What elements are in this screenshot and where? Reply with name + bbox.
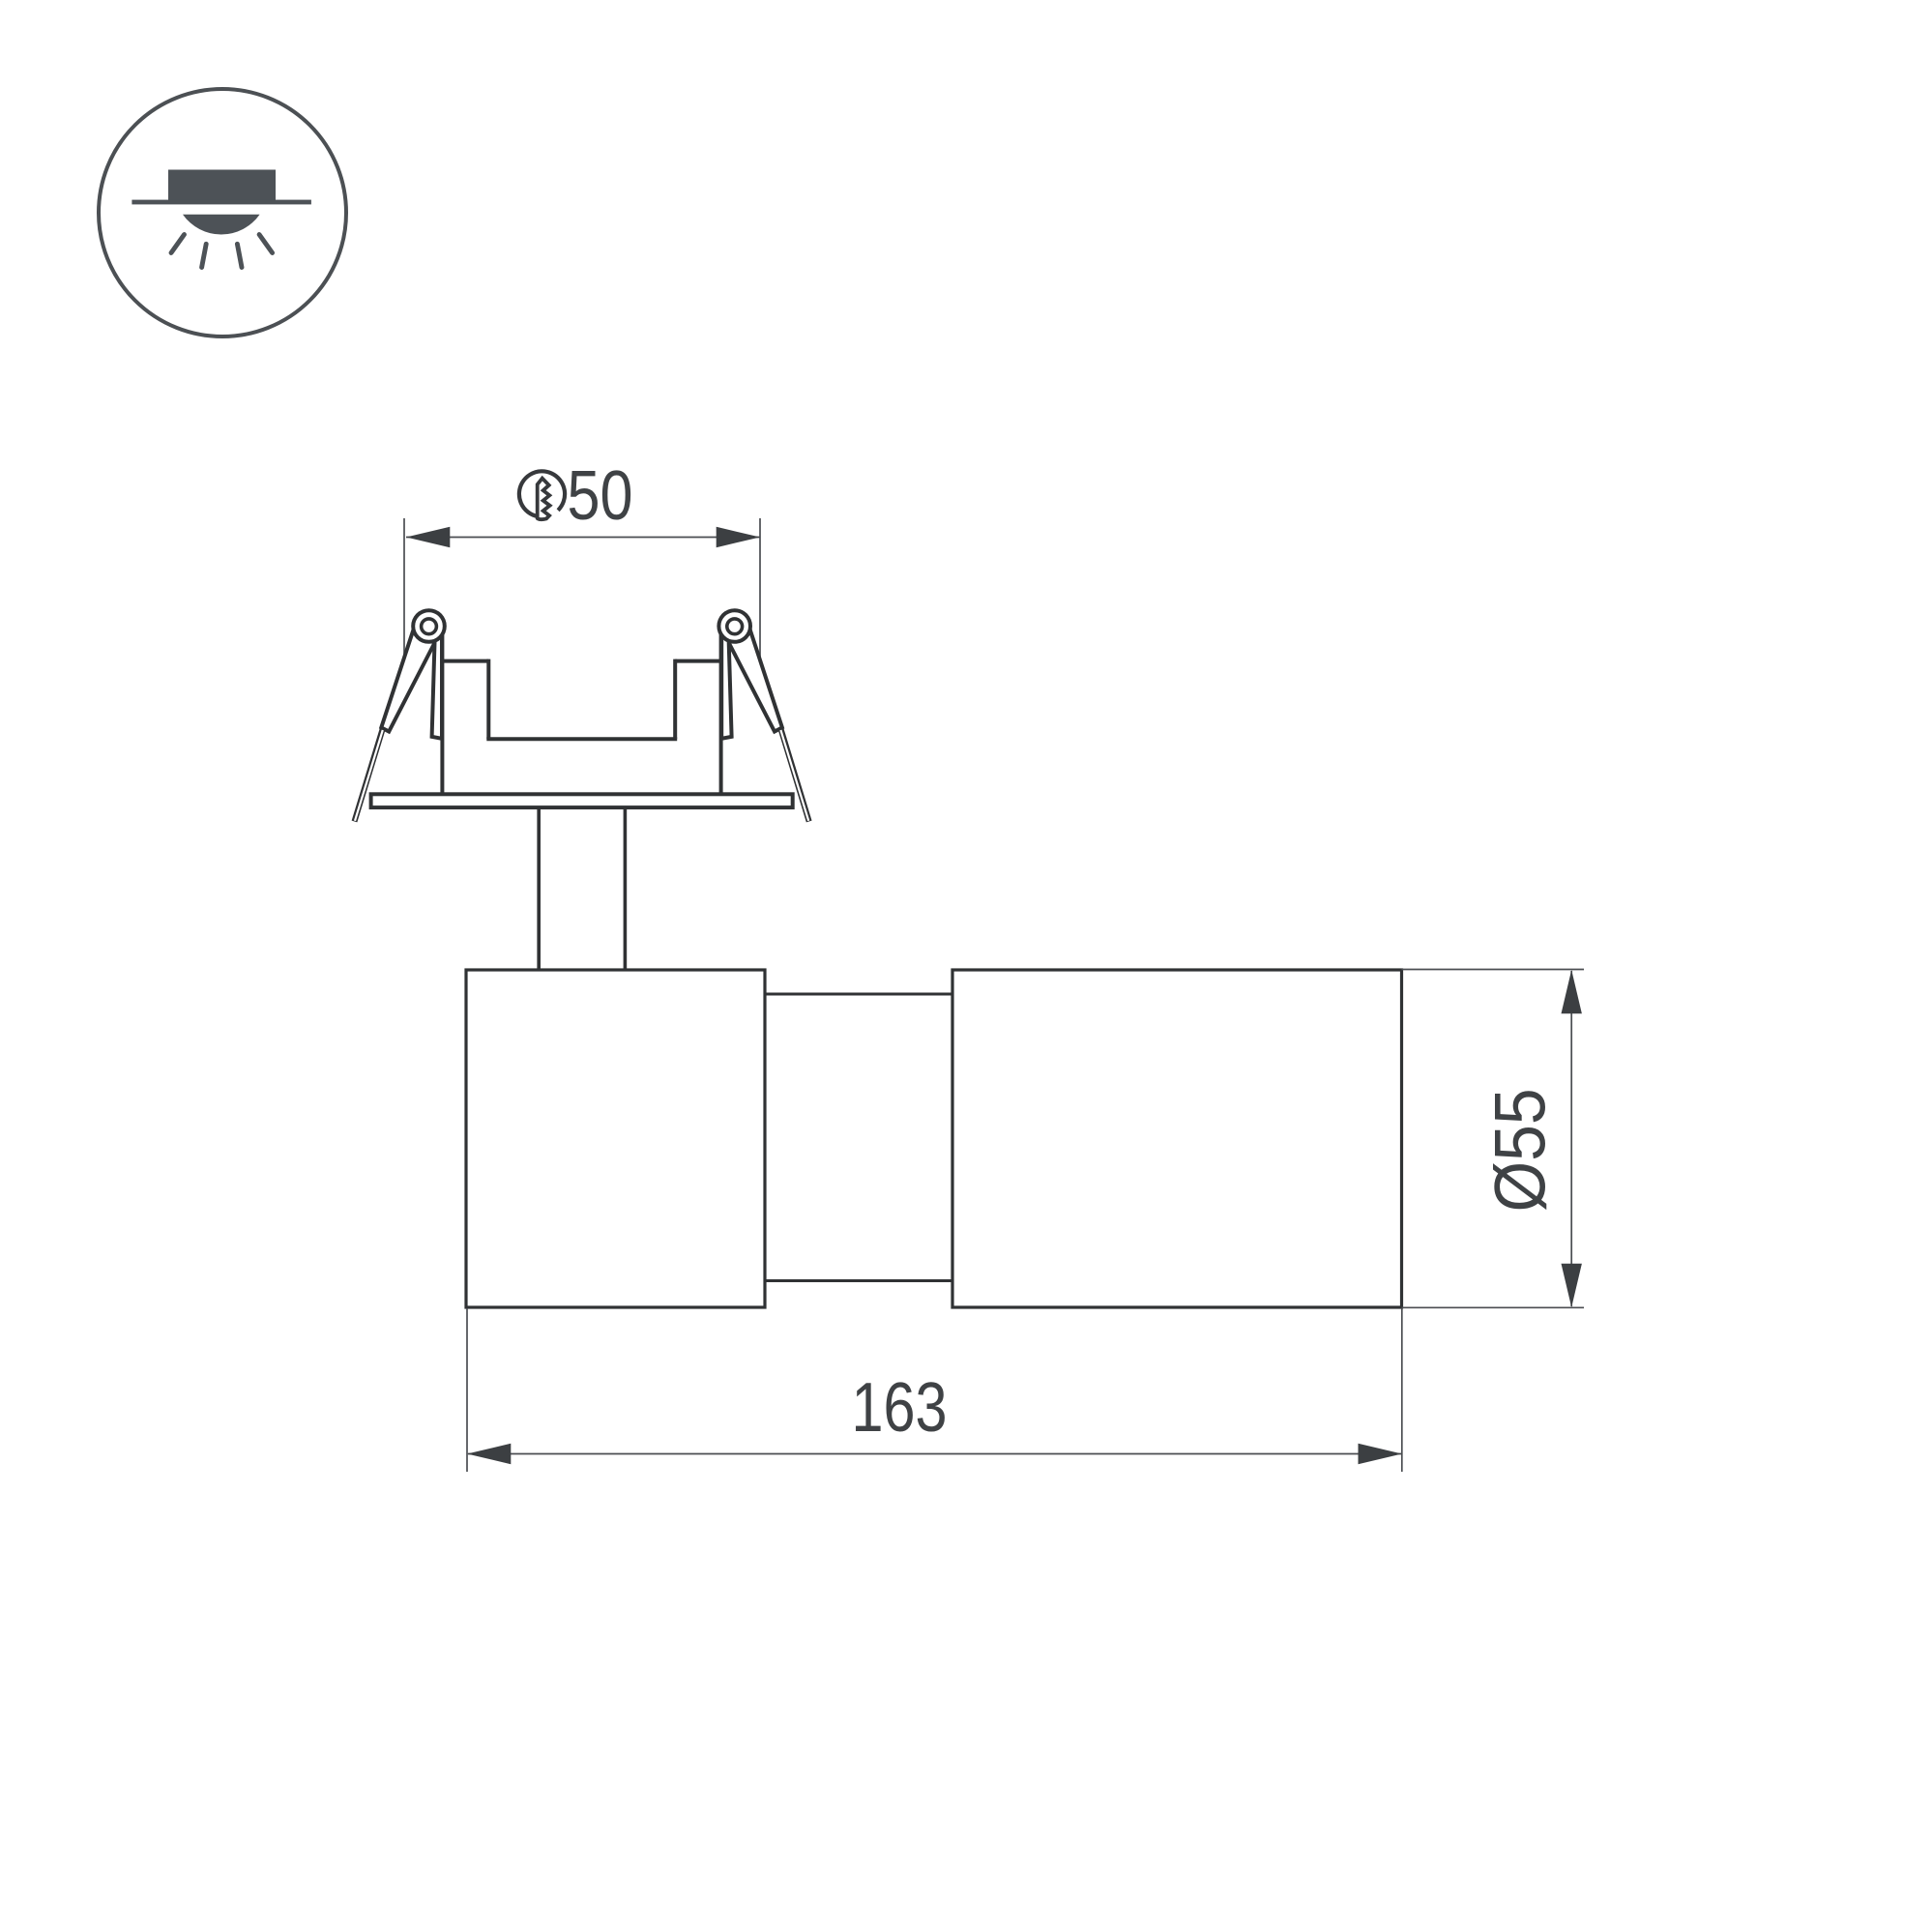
svg-text:Ø55: Ø55	[1480, 1089, 1561, 1213]
svg-text:163: 163	[852, 1369, 948, 1447]
svg-text:50: 50	[568, 457, 633, 535]
